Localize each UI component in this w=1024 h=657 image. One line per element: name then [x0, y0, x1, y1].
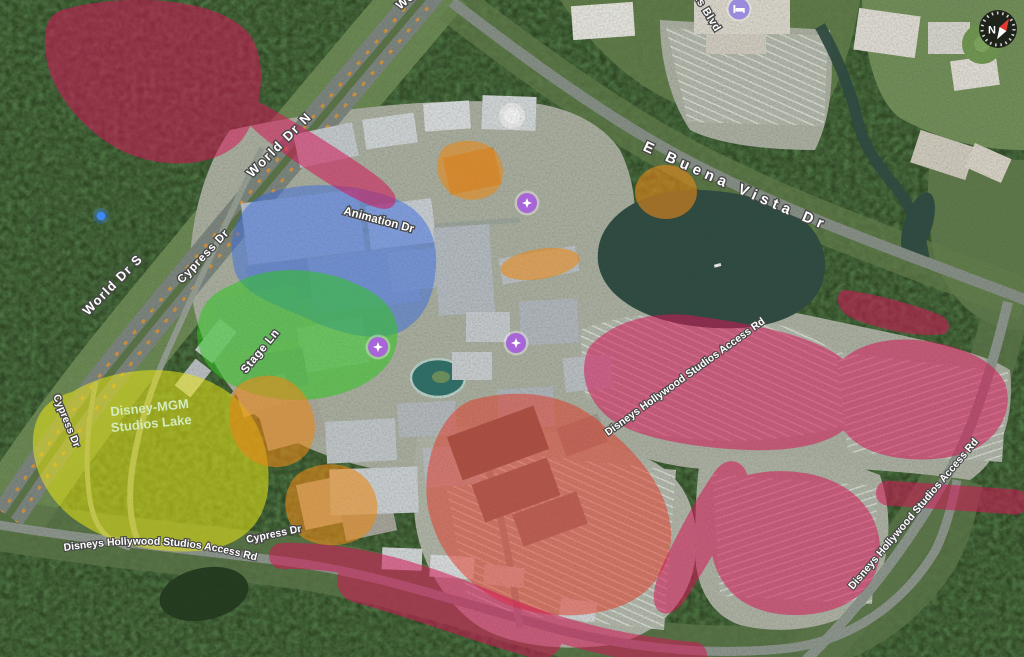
compass[interactable]: N — [979, 10, 1017, 48]
zone-green — [197, 270, 397, 400]
attraction-marker[interactable] — [515, 191, 540, 216]
dot-icon — [97, 212, 106, 221]
attraction-marker[interactable] — [504, 331, 529, 356]
compass-north-label: N — [988, 25, 996, 37]
attraction-marker[interactable] — [366, 335, 391, 360]
poi-dot[interactable] — [93, 208, 109, 224]
satellite-map[interactable]: World Dr N World Dr S World Dr N Cypress… — [0, 0, 1024, 657]
